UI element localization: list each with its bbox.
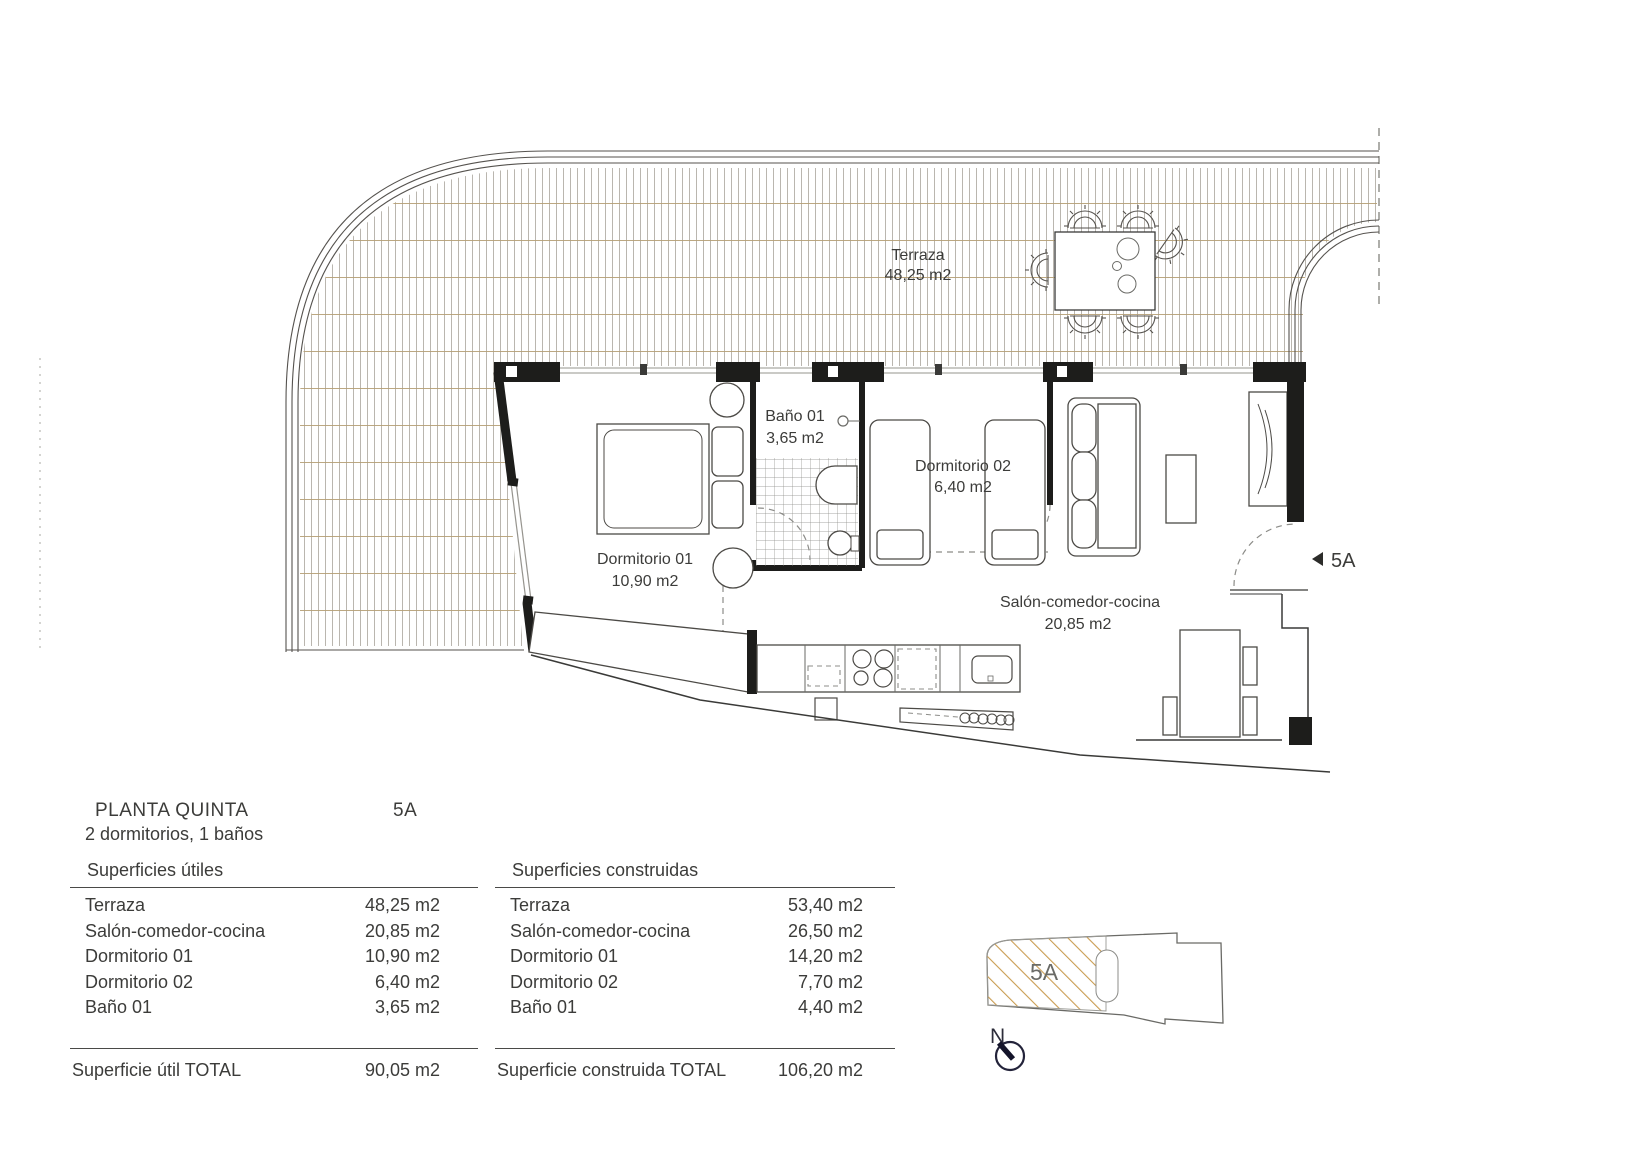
dining-chair (1243, 647, 1257, 685)
table-row: Salón-comedor-cocina 20,85 m2 (70, 921, 478, 947)
table-row: Dormitorio 01 14,20 m2 (495, 946, 895, 972)
floor-subtitle: 2 dormitorios, 1 baños (70, 824, 480, 848)
useful-areas-table: Superficies útiles Terraza 48,25 m2 Saló… (70, 860, 478, 1081)
nightstand (713, 548, 753, 588)
floor-title: PLANTA QUINTA (95, 800, 249, 821)
north-compass-icon: N (990, 1025, 1024, 1070)
bathtub (816, 466, 857, 504)
table-row: Dormitorio 02 6,40 m2 (70, 972, 478, 998)
room-area-terraza: 48,25 m2 (885, 267, 952, 284)
table-row: Baño 01 3,65 m2 (70, 997, 478, 1023)
table-row: Dormitorio 01 10,90 m2 (70, 946, 478, 972)
room-label-bath: Baño 01 (765, 408, 825, 425)
room-area-living: 20,85 m2 (1045, 616, 1112, 633)
pillow (712, 481, 743, 528)
room-area-bedroom2: 6,40 m2 (934, 479, 992, 496)
washbasin (838, 416, 848, 426)
table-row: Salón-comedor-cocina 26,50 m2 (495, 921, 895, 947)
room-label-living: Salón-comedor-cocina (1000, 594, 1160, 611)
sink (972, 656, 1012, 683)
stair-core (1096, 950, 1118, 1002)
entrance-marker-label: 5A (1331, 550, 1356, 572)
nightstand (710, 383, 744, 417)
entrance-arrow-icon (1312, 552, 1323, 566)
wine-rack (900, 708, 1014, 730)
table-total-row: Superficie construida TOTAL 106,20 m2 (495, 1048, 895, 1081)
floor-plan: Terraza 48,25 m2 (0, 0, 1638, 795)
toilet (828, 531, 852, 555)
table-row: Terraza 48,25 m2 (70, 895, 478, 921)
coffee-table (1166, 455, 1196, 523)
table-total-row: Superficie útil TOTAL 90,05 m2 (70, 1048, 478, 1081)
tv-unit (1249, 392, 1287, 506)
table-header: Superficies construidas (495, 860, 895, 887)
table-row: Baño 01 4,40 m2 (495, 997, 895, 1023)
outdoor-table (1055, 232, 1155, 310)
dining-table (1180, 630, 1240, 737)
room-area-bath: 3,65 m2 (766, 430, 824, 447)
pillow (992, 530, 1038, 559)
room-area-bedroom1: 10,90 m2 (612, 573, 679, 590)
built-areas-table: Superficies construidas Terraza 53,40 m2… (495, 860, 895, 1081)
room-label-bedroom1: Dormitorio 01 (597, 551, 693, 568)
pillow (712, 427, 743, 476)
table-row: Terraza 53,40 m2 (495, 895, 895, 921)
locator-unit-label: 5A (1030, 959, 1059, 985)
entrance-marker: 5A (1312, 550, 1356, 572)
room-label-terraza: Terraza (891, 247, 944, 264)
dining-chair (1163, 697, 1177, 735)
table-row: Dormitorio 02 7,70 m2 (495, 972, 895, 998)
locator-key: 5A N (930, 880, 1260, 1100)
title-block: PLANTA QUINTA 5A 2 dormitorios, 1 baños (70, 800, 480, 848)
room-label-bedroom2: Dormitorio 02 (915, 458, 1011, 475)
dining-chair (1243, 697, 1257, 735)
kitchen (747, 630, 1020, 730)
table-header: Superficies útiles (70, 860, 478, 887)
unit-code: 5A (393, 800, 417, 822)
pillow (877, 530, 923, 559)
